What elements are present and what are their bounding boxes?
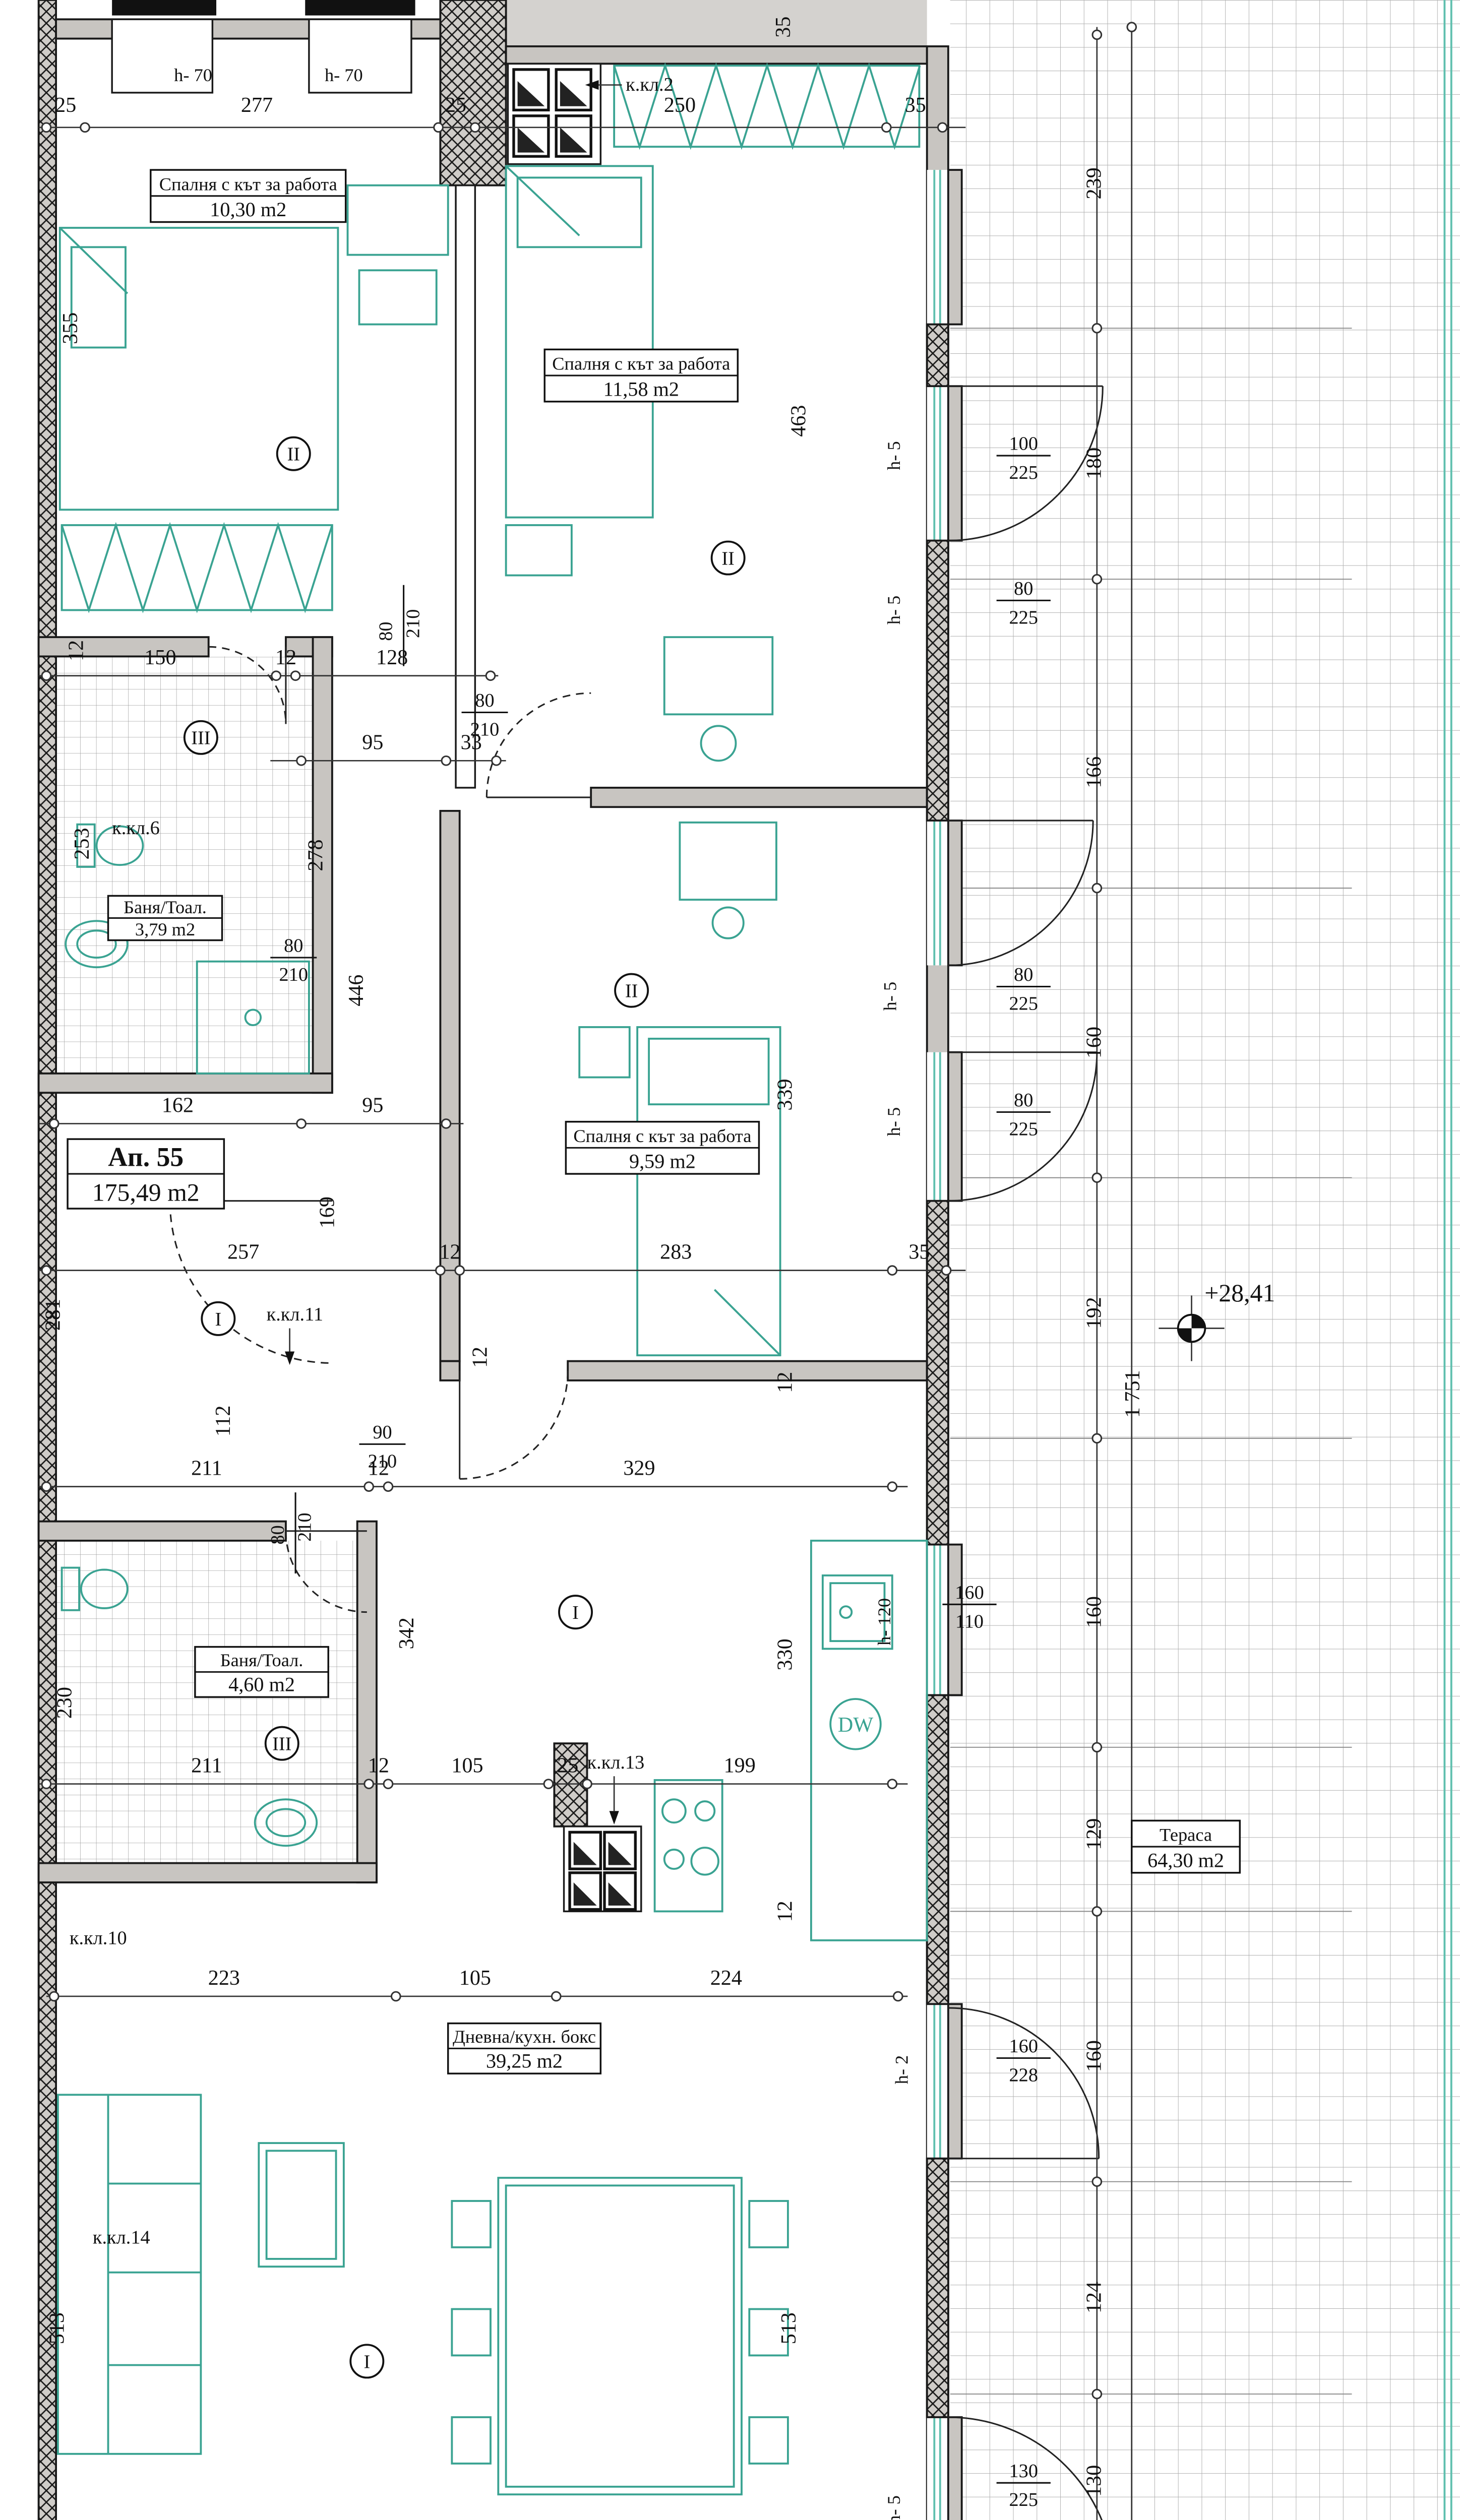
dim: 342 [395, 1617, 418, 1649]
partition-cavity-wall [456, 185, 475, 788]
height-label: h- 120 [874, 1598, 894, 1646]
dim: 277 [241, 93, 273, 117]
closet-label: к.кл.10 [70, 1928, 127, 1949]
dim: 160 [1082, 1596, 1106, 1628]
floor-plan-svg: II II III II I I III I Спалня с кът за р… [0, 0, 1460, 2520]
dim: 105 [459, 1966, 491, 1990]
right-wall-piers [927, 325, 948, 2520]
dim: 35 [908, 1240, 930, 1264]
room-marker: I [363, 2351, 370, 2372]
room-marker: I [215, 1309, 221, 1330]
dim: 199 [724, 1754, 756, 1778]
bath2-bottom-wall [39, 1863, 377, 1882]
dim: 160 [1009, 2036, 1038, 2057]
height-label: h- 70 [174, 65, 212, 85]
dim: 239 [1082, 167, 1106, 199]
dim: 210 [279, 964, 308, 985]
dim: 169 [316, 1196, 339, 1228]
dim: 250 [664, 93, 696, 117]
pillow [518, 177, 641, 247]
height-label: h- 5 [884, 596, 904, 625]
dim: 12 [773, 1372, 797, 1393]
bath2-top-wall [39, 1522, 286, 1541]
closet-label: к.кл.6 [112, 817, 160, 839]
dim: 210 [294, 1513, 316, 1541]
left-exterior-wall [39, 0, 56, 2520]
dim: 225 [1009, 1118, 1038, 1140]
bed [637, 1027, 780, 1355]
dim: 35 [771, 17, 795, 38]
dim: 100 [1009, 433, 1038, 455]
chair [452, 2309, 491, 2356]
desk [680, 823, 776, 900]
dim: 166 [1082, 757, 1106, 788]
dim: 80 [475, 690, 494, 711]
dim: 228 [1009, 2064, 1038, 2086]
top-wall-segment [112, 0, 216, 16]
room-marker: II [287, 444, 300, 465]
chair [749, 2417, 788, 2464]
desk [664, 637, 773, 714]
dim: 110 [955, 1611, 984, 1632]
chair [452, 2201, 491, 2247]
dim: 281 [41, 1299, 65, 1331]
dim: 130 [1082, 2465, 1106, 2497]
dim: 192 [1082, 1297, 1106, 1329]
walls-layer [39, 0, 962, 2520]
chair [452, 2417, 491, 2464]
room-area: 10,30 m2 [210, 198, 286, 221]
height-label: h- 70 [325, 65, 363, 85]
dim: 210 [470, 719, 499, 740]
dim: 225 [1009, 607, 1038, 628]
room-name: Спалня с кът за работа [573, 1126, 751, 1146]
dim: 80 [376, 621, 397, 641]
dim: 12 [275, 646, 296, 669]
dim: 80 [1014, 578, 1033, 599]
room-name: Баня/Тоал. [220, 1650, 303, 1670]
dim: 513 [45, 2312, 69, 2344]
room-name: Спалня с кът за работа [159, 174, 337, 194]
height-label: h- 5 [884, 2495, 904, 2520]
nightstand [359, 270, 437, 324]
pillow [649, 1039, 769, 1104]
dim: 105 [451, 1754, 483, 1778]
closet-label: к.кл.11 [267, 1304, 323, 1325]
dim: 253 [70, 828, 94, 859]
dim: 12 [65, 640, 88, 661]
dim: 160 [955, 1582, 984, 1603]
dim: 329 [623, 1457, 655, 1480]
room-area: 4,60 m2 [228, 1673, 295, 1696]
bath2-tiles [56, 1541, 357, 1863]
dim: 257 [227, 1240, 259, 1264]
kitchen-counter [811, 1541, 927, 1940]
dim: 230 [53, 1687, 77, 1719]
dim: 225 [1009, 462, 1038, 483]
pier-column [440, 0, 506, 185]
room-marker: III [191, 728, 210, 749]
electrical-panel-kkl2 [508, 64, 600, 164]
coffee-table [259, 2143, 344, 2266]
bedroom2-bottom-wall [591, 788, 927, 807]
top-wall-segment [305, 0, 415, 16]
room-area: 11,58 m2 [603, 377, 679, 400]
dim: 513 [777, 2312, 801, 2344]
dim: 180 [1082, 448, 1106, 479]
dim: 128 [376, 646, 408, 669]
height-label: h- 2 [891, 2055, 911, 2085]
dim: 80 [1014, 1090, 1033, 1111]
corridor-outside [506, 0, 927, 46]
apartment-number: Ап. 55 [108, 1142, 184, 1172]
dim: 12 [368, 1754, 389, 1778]
dim: 80 [284, 935, 303, 957]
room-marker: III [272, 1734, 291, 1755]
dim: 210 [402, 609, 423, 638]
dining-table [498, 2178, 742, 2494]
sofa [58, 2095, 201, 2454]
dim: 112 [211, 1406, 235, 1437]
height-label: h- 5 [880, 982, 900, 1011]
electrical-panel-kkl13 [564, 1826, 641, 1912]
room-marker: II [721, 548, 735, 569]
chair [749, 2201, 788, 2247]
dim: 210 [368, 1451, 397, 1472]
dim: 330 [773, 1639, 797, 1670]
room-name: Дневна/кухн. бокс [453, 2027, 596, 2047]
dim: 211 [191, 1457, 222, 1480]
room-name: Спалня с кът за работа [552, 354, 730, 374]
dim: 160 [1082, 2040, 1106, 2072]
dim: 12 [468, 1347, 492, 1368]
dim: 446 [344, 975, 368, 1006]
chair [701, 726, 736, 761]
dim: 339 [773, 1079, 797, 1110]
room-marker: I [572, 1602, 579, 1623]
room-name: Тераса [1160, 1825, 1212, 1845]
dim: 124 [1082, 2282, 1106, 2313]
dim: 90 [373, 1422, 392, 1443]
apartment-area: 175,49 m2 [92, 1179, 200, 1207]
dim: 12 [773, 1901, 797, 1922]
room-area: 3,79 m2 [135, 919, 195, 939]
room-area: 9,59 m2 [629, 1150, 696, 1173]
floor-plan-canvas: II II III II I I III I Спалня с кът за р… [0, 0, 1460, 2520]
bedroom3-left-wall [440, 811, 459, 1361]
dim: 95 [362, 1093, 383, 1117]
room-marker: II [625, 981, 638, 1002]
bedroom3-bottom-wall [568, 1361, 927, 1380]
dim: 162 [162, 1093, 194, 1117]
room-area: 64,30 m2 [1147, 1849, 1224, 1871]
nightstand [579, 1027, 630, 1078]
dim: 129 [1082, 1818, 1106, 1850]
closet-label: к.кл.14 [93, 2227, 150, 2248]
chair [713, 907, 744, 938]
dishwasher-label: DW [838, 1713, 873, 1737]
dim: 80 [267, 1525, 288, 1544]
dim: 223 [208, 1966, 240, 1990]
dim-total: 1 751 [1121, 1370, 1144, 1418]
bedroom3-bottom-wall [440, 1361, 459, 1380]
dim: 25 [55, 93, 76, 117]
bedroom2-top-wall [506, 46, 927, 64]
room-area: 39,25 m2 [486, 2050, 563, 2072]
dim: 80 [1014, 964, 1033, 985]
dim: 225 [1009, 2489, 1038, 2510]
dim: 35 [905, 93, 926, 117]
dim: 278 [304, 839, 328, 871]
dim: 211 [191, 1754, 222, 1778]
dim: 283 [660, 1240, 692, 1264]
room-name: Баня/Тоал. [124, 897, 207, 917]
dim: 12 [439, 1240, 460, 1264]
height-label: h- 5 [884, 1107, 904, 1137]
dim: 224 [710, 1966, 742, 1990]
dim: 95 [362, 730, 383, 754]
dim: 463 [786, 405, 810, 436]
closet-label: к.кл.13 [587, 1752, 645, 1773]
height-label: h- 5 [884, 441, 904, 470]
dim: 150 [144, 646, 176, 669]
bed [506, 166, 653, 517]
elevation-label: +28,41 [1204, 1279, 1275, 1307]
dim: 130 [1009, 2461, 1038, 2482]
bath2-right-wall [357, 1522, 377, 1882]
dim: 355 [58, 312, 82, 344]
stove [655, 1780, 722, 1911]
dim: 160 [1082, 1027, 1106, 1058]
dim: 225 [1009, 993, 1038, 1014]
dim: 25 [445, 93, 466, 117]
bath1-bottom-wall [39, 1074, 332, 1093]
dim: 25 [557, 1754, 578, 1778]
nightstand [506, 525, 572, 576]
desk [348, 185, 448, 255]
closet-label: к.кл.2 [626, 74, 674, 95]
